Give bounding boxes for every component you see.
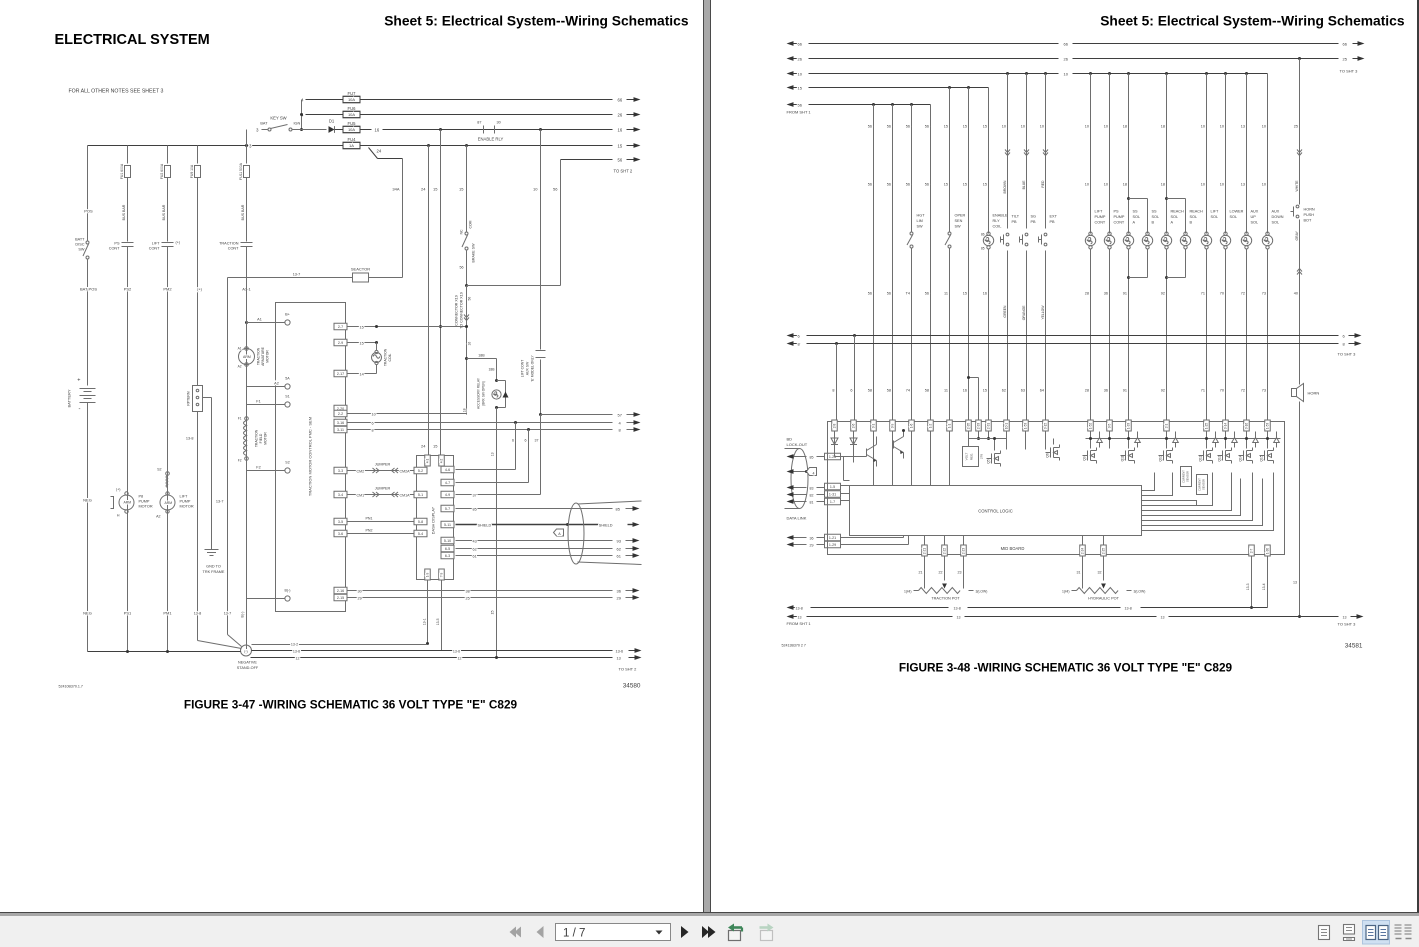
svg-text:85: 85 xyxy=(616,507,621,512)
svg-text:Q9: Q9 xyxy=(1083,456,1087,460)
svg-text:1-2: 1-2 xyxy=(929,423,933,428)
svg-text:10: 10 xyxy=(1085,125,1089,129)
svg-text:1-30: 1-30 xyxy=(1266,548,1270,555)
svg-text:SW: SW xyxy=(955,225,962,229)
svg-text:B(-): B(-) xyxy=(285,589,291,593)
svg-text:13: 13 xyxy=(1241,183,1245,187)
svg-text:SOL: SOL xyxy=(1133,215,1141,219)
svg-text:16: 16 xyxy=(963,389,967,393)
svg-text:PB: PB xyxy=(1012,220,1018,224)
svg-text:13-8: 13-8 xyxy=(1125,607,1132,611)
svg-text:PUMP: PUMP xyxy=(139,500,150,504)
svg-text:1(HI): 1(HI) xyxy=(1062,590,1070,594)
svg-text:72: 72 xyxy=(1241,292,1245,296)
svg-text:13: 13 xyxy=(957,616,961,620)
svg-text:REACH: REACH xyxy=(1190,210,1204,214)
svg-text:ARM: ARM xyxy=(165,501,173,505)
svg-text:SOL: SOL xyxy=(1251,221,1259,225)
svg-text:2-2: 2-2 xyxy=(338,412,343,416)
svg-text:3-4: 3-4 xyxy=(338,493,343,497)
svg-text:SHIELD: SHIELD xyxy=(478,524,492,528)
svg-text:BD: BD xyxy=(787,437,793,442)
svg-text:3-3: 3-3 xyxy=(338,469,343,473)
svg-text:TO SHT 2: TO SHT 2 xyxy=(614,169,633,174)
svg-text:3-16: 3-16 xyxy=(1245,423,1249,430)
svg-text:32: 32 xyxy=(1098,571,1102,575)
svg-text:34A: 34A xyxy=(392,187,399,192)
svg-text:61: 61 xyxy=(473,555,477,559)
svg-text:2-31: 2-31 xyxy=(987,423,991,430)
svg-text:NC: NC xyxy=(460,229,464,234)
svg-text:15: 15 xyxy=(963,292,967,296)
svg-text:4-9: 4-9 xyxy=(445,493,450,497)
svg-text:13: 13 xyxy=(1161,616,1165,620)
svg-text:5-2: 5-2 xyxy=(418,469,423,473)
svg-text:COIL: COIL xyxy=(993,225,1002,229)
svg-text:SS: SS xyxy=(1133,210,1139,214)
svg-text:15: 15 xyxy=(618,144,623,149)
svg-text:MOTOR: MOTOR xyxy=(139,505,153,509)
svg-text:PUMP: PUMP xyxy=(180,500,191,504)
svg-text:BUS BAR: BUS BAR xyxy=(122,204,126,220)
svg-text:2-15: 2-15 xyxy=(337,596,344,600)
svg-text:13-8: 13-8 xyxy=(796,607,803,611)
svg-text:BLUE: BLUE xyxy=(1022,180,1026,190)
svg-text:MOTOR: MOTOR xyxy=(180,505,194,509)
svg-text:13: 13 xyxy=(617,657,621,661)
svg-text:10: 10 xyxy=(1040,125,1044,129)
svg-text:SEACTOR: SEACTOR xyxy=(351,267,370,272)
svg-text:10: 10 xyxy=(1104,125,1108,129)
svg-text:YELLOW: YELLOW xyxy=(1041,305,1045,320)
svg-text:13-5: 13-5 xyxy=(436,618,440,625)
svg-text:3: 3 xyxy=(256,128,259,133)
svg-text:A2: A2 xyxy=(156,515,160,519)
svg-text:1-5: 1-5 xyxy=(830,485,835,489)
svg-text:BUS BAR: BUS BAR xyxy=(241,204,245,220)
svg-text:PS2: PS2 xyxy=(124,287,132,292)
svg-text:18: 18 xyxy=(1123,183,1127,187)
svg-text:BROWN: BROWN xyxy=(1003,180,1007,194)
svg-text:H: H xyxy=(117,514,120,518)
svg-text:58: 58 xyxy=(868,389,872,393)
svg-text:B+: B+ xyxy=(285,313,291,317)
svg-text:2-6: 2-6 xyxy=(852,423,856,428)
svg-text:LIFT: LIFT xyxy=(1211,210,1219,214)
svg-text:2-22: 2-22 xyxy=(943,548,947,555)
svg-text:POS: POS xyxy=(84,209,93,214)
svg-text:D1: D1 xyxy=(329,119,335,124)
svg-text:71: 71 xyxy=(1201,389,1205,393)
svg-text:3-16: 3-16 xyxy=(337,421,344,425)
svg-text:11: 11 xyxy=(944,292,948,296)
svg-text:26: 26 xyxy=(618,113,623,118)
svg-text:5-7: 5-7 xyxy=(445,507,450,511)
svg-text:15: 15 xyxy=(459,187,464,192)
svg-text:SHIELD: SHIELD xyxy=(599,524,613,528)
svg-text:24: 24 xyxy=(377,149,382,154)
svg-text:PN2: PN2 xyxy=(366,529,373,533)
svg-text:15: 15 xyxy=(433,187,438,192)
svg-text:SW: SW xyxy=(78,248,85,252)
svg-text:13: 13 xyxy=(491,452,495,456)
svg-text:66: 66 xyxy=(798,42,803,47)
svg-text:Q12: Q12 xyxy=(1199,455,1203,461)
svg-text:BRAKE SW: BRAKE SW xyxy=(472,243,476,263)
svg-text:LIM: LIM xyxy=(917,219,923,223)
svg-text:13: 13 xyxy=(1293,581,1297,585)
svg-text:LOWER: LOWER xyxy=(1230,210,1244,214)
svg-text:15: 15 xyxy=(798,86,803,91)
svg-text:(+): (+) xyxy=(116,488,121,492)
svg-text:70: 70 xyxy=(1220,389,1224,393)
svg-text:NEG: NEG xyxy=(83,498,92,503)
svg-text:8: 8 xyxy=(1343,342,1346,347)
svg-text:Sheet 5: Electrical System--Wi: Sheet 5: Electrical System--Wiring Schem… xyxy=(1100,14,1405,29)
svg-text:TRACTION: TRACTION xyxy=(255,429,259,447)
svg-text:1-53: 1-53 xyxy=(1266,423,1270,430)
svg-text:18B: 18B xyxy=(488,368,495,372)
svg-text:CONT: CONT xyxy=(109,247,120,251)
svg-text:1-1: 1-1 xyxy=(948,423,952,428)
svg-text:1-7: 1-7 xyxy=(830,500,835,504)
svg-text:4: 4 xyxy=(813,472,815,476)
svg-text:AUX: AUX xyxy=(1272,210,1280,214)
svg-text:10: 10 xyxy=(1002,125,1006,129)
svg-text:58: 58 xyxy=(925,389,929,393)
svg-text:10: 10 xyxy=(1085,183,1089,187)
svg-text:86: 86 xyxy=(981,233,985,237)
svg-text:MOTOR: MOTOR xyxy=(264,432,268,445)
svg-text:FIELD: FIELD xyxy=(259,433,263,443)
svg-text:CONT: CONT xyxy=(149,247,160,251)
svg-text:FU11 500A: FU11 500A xyxy=(239,162,243,180)
svg-text:81: 81 xyxy=(810,501,814,505)
svg-text:FROM SHT 1: FROM SHT 1 xyxy=(787,621,812,626)
svg-text:10: 10 xyxy=(533,187,538,192)
svg-text:SG: SG xyxy=(1031,215,1037,219)
svg-text:SENSOR: SENSOR xyxy=(1186,471,1190,482)
svg-text:2-9: 2-9 xyxy=(338,341,343,345)
svg-text:72: 72 xyxy=(1241,389,1245,393)
svg-text:25: 25 xyxy=(1343,57,1348,62)
svg-text:10: 10 xyxy=(1262,125,1266,129)
svg-text:37: 37 xyxy=(535,439,539,443)
svg-text:16: 16 xyxy=(375,128,380,133)
svg-text:REACH: REACH xyxy=(1171,210,1185,214)
svg-text:52410B370.1.7: 52410B370.1.7 xyxy=(59,685,83,689)
svg-text:3-15: 3-15 xyxy=(1044,423,1048,430)
svg-text:13-4: 13-4 xyxy=(1262,583,1266,590)
svg-text:SOL: SOL xyxy=(1272,221,1280,225)
svg-text:15: 15 xyxy=(433,444,438,449)
svg-text:13: 13 xyxy=(1241,125,1245,129)
svg-text:TRACTION: TRACTION xyxy=(257,347,261,365)
svg-text:Q13: Q13 xyxy=(1218,455,1222,461)
svg-text:63: 63 xyxy=(1021,389,1025,393)
svg-text:7-9: 7-9 xyxy=(440,572,444,577)
svg-text:Q10: Q10 xyxy=(1159,455,1163,461)
svg-text:S1: S1 xyxy=(285,395,289,399)
svg-text:'E' MODEL ONLY: 'E' MODEL ONLY xyxy=(531,355,535,382)
svg-text:ARMATURE: ARMATURE xyxy=(261,346,265,366)
svg-text:TRACTION: TRACTION xyxy=(384,348,388,366)
svg-text:85: 85 xyxy=(810,456,814,460)
svg-text:S2: S2 xyxy=(285,461,289,465)
svg-text:FIGURE 3-48 -WIRING SCHEMATIC: FIGURE 3-48 -WIRING SCHEMATIC 36 VOLT TY… xyxy=(899,661,1233,675)
svg-text:56: 56 xyxy=(798,103,803,108)
svg-text:FU4: FU4 xyxy=(348,137,357,142)
svg-text:13-6: 13-6 xyxy=(453,650,460,654)
svg-text:CONTROL LOGIC: CONTROL LOGIC xyxy=(978,509,1013,514)
svg-text:36: 36 xyxy=(1104,389,1108,393)
svg-text:TO SHT 3: TO SHT 3 xyxy=(1338,352,1357,357)
svg-text:PB: PB xyxy=(1050,220,1056,224)
svg-text:PUSH: PUSH xyxy=(1304,213,1315,217)
svg-text:56: 56 xyxy=(868,183,872,187)
svg-text:HORN: HORN xyxy=(1308,391,1320,396)
svg-text:AUX SW: AUX SW xyxy=(526,361,530,375)
svg-text:73: 73 xyxy=(1262,389,1266,393)
svg-text:5-4: 5-4 xyxy=(418,532,423,536)
svg-text:2-7: 2-7 xyxy=(338,325,343,329)
svg-text:TRACTION MOTOR CONTROL PMC - S: TRACTION MOTOR CONTROL PMC - SEM xyxy=(308,417,313,496)
svg-text:S2: S2 xyxy=(157,468,161,472)
svg-text:13-2: 13-2 xyxy=(291,643,298,647)
svg-text:AUX: AUX xyxy=(1251,210,1259,214)
svg-text:85: 85 xyxy=(473,508,477,512)
svg-text:31: 31 xyxy=(1077,571,1081,575)
svg-text:13-8: 13-8 xyxy=(194,612,202,616)
svg-text:13-7: 13-7 xyxy=(216,500,224,504)
svg-text:24: 24 xyxy=(421,444,426,449)
svg-text:2-33: 2-33 xyxy=(977,423,981,430)
svg-text:FROM SHT 1: FROM SHT 1 xyxy=(787,110,812,115)
svg-text:56: 56 xyxy=(887,292,891,296)
svg-text:SOL: SOL xyxy=(1211,215,1219,219)
svg-text:Q14: Q14 xyxy=(1239,455,1243,461)
svg-text:30: 30 xyxy=(497,121,501,125)
svg-text:A1: A1 xyxy=(238,347,242,351)
svg-text:13-8: 13-8 xyxy=(954,607,961,611)
svg-text:PM1: PM1 xyxy=(163,611,172,616)
svg-text:56: 56 xyxy=(925,125,929,129)
svg-text:56: 56 xyxy=(868,125,872,129)
svg-text:34581: 34581 xyxy=(1345,643,1363,650)
svg-text:LIFT: LIFT xyxy=(152,242,160,246)
svg-text:14: 14 xyxy=(360,373,364,377)
svg-text:56: 56 xyxy=(868,292,872,296)
svg-text:CM2: CM2 xyxy=(357,470,365,474)
svg-text:UP: UP xyxy=(1251,215,1257,219)
svg-text:BATT: BATT xyxy=(75,238,85,242)
svg-text:-: - xyxy=(79,407,81,413)
svg-text:CM1: CM1 xyxy=(357,494,365,498)
svg-text:10: 10 xyxy=(1104,183,1108,187)
svg-text:1-21: 1-21 xyxy=(829,536,836,540)
svg-text:15: 15 xyxy=(983,125,987,129)
svg-text:PUMP: PUMP xyxy=(1095,215,1106,219)
svg-text:Q15: Q15 xyxy=(1260,455,1264,461)
svg-text:15: 15 xyxy=(983,183,987,187)
svg-text:26: 26 xyxy=(798,57,803,62)
svg-text:10: 10 xyxy=(1021,125,1025,129)
svg-text:3-6: 3-6 xyxy=(338,532,343,536)
svg-text:5-1: 5-1 xyxy=(418,493,423,497)
svg-text:83: 83 xyxy=(810,487,814,491)
svg-text:13-1: 13-1 xyxy=(423,618,427,625)
svg-text:2-1: 2-1 xyxy=(1165,423,1169,428)
svg-text:BAT: BAT xyxy=(260,122,268,126)
svg-text:52413B370 2 7: 52413B370 2 7 xyxy=(782,644,806,648)
svg-text:CONT: CONT xyxy=(1095,221,1106,225)
svg-text:56: 56 xyxy=(925,183,929,187)
svg-text:CONT: CONT xyxy=(228,247,239,251)
svg-text:EXT: EXT xyxy=(1050,215,1058,219)
svg-text:DISC: DISC xyxy=(75,243,84,247)
svg-text:2-21: 2-21 xyxy=(923,548,927,555)
svg-text:3-1: 3-1 xyxy=(872,423,876,428)
svg-text:26: 26 xyxy=(1064,57,1069,62)
svg-text:P8: P8 xyxy=(139,495,144,499)
svg-text:91: 91 xyxy=(1123,292,1127,296)
svg-text:30: 30 xyxy=(358,590,362,594)
svg-text:1-33: 1-33 xyxy=(1127,423,1131,430)
svg-text:5-11: 5-11 xyxy=(444,523,451,527)
svg-text:43: 43 xyxy=(473,540,477,544)
svg-text:LIFT: LIFT xyxy=(1095,210,1103,214)
svg-text:38: 38 xyxy=(466,590,470,594)
svg-text:34580: 34580 xyxy=(623,683,641,690)
svg-text:1A: 1A xyxy=(349,143,354,148)
svg-text:3-14: 3-14 xyxy=(1224,423,1228,430)
svg-text:4-2: 4-2 xyxy=(440,458,444,463)
svg-text:TRK FRAME: TRK FRAME xyxy=(203,570,225,574)
svg-text:ELECTRICAL SYSTEM: ELECTRICAL SYSTEM xyxy=(55,32,210,48)
svg-text:CM2A: CM2A xyxy=(400,470,411,474)
svg-text:1-31: 1-31 xyxy=(829,493,836,497)
svg-text:MID BOARD: MID BOARD xyxy=(1001,546,1025,551)
svg-text:ARM: ARM xyxy=(243,355,251,359)
svg-text:8: 8 xyxy=(619,428,622,433)
svg-text:TO SHT 3: TO SHT 3 xyxy=(1340,69,1359,74)
svg-text:TRACTION: TRACTION xyxy=(219,242,239,246)
svg-text:6-5: 6-5 xyxy=(445,547,450,551)
svg-text:DOWN: DOWN xyxy=(1272,215,1284,219)
svg-text:COM: COM xyxy=(469,220,473,228)
svg-text:22: 22 xyxy=(939,571,943,575)
svg-text:1-53: 1-53 xyxy=(1024,423,1028,430)
svg-text:FIGURE 3-47 -WIRING SCHEMATIC: FIGURE 3-47 -WIRING SCHEMATIC 36 VOLT TY… xyxy=(184,698,518,712)
svg-text:15: 15 xyxy=(963,183,967,187)
svg-text:2-23: 2-23 xyxy=(962,548,966,555)
svg-text:COIL: COIL xyxy=(388,353,392,361)
svg-text:62: 62 xyxy=(473,548,477,552)
svg-text:10-1: 10-1 xyxy=(1005,423,1009,430)
svg-text:ARM: ARM xyxy=(124,500,132,504)
svg-text:A1: A1 xyxy=(257,318,262,322)
svg-text:VOLT: VOLT xyxy=(965,453,969,461)
svg-text:13-8: 13-8 xyxy=(186,437,194,441)
svg-text:6: 6 xyxy=(372,422,374,426)
svg-text:1-29: 1-29 xyxy=(829,543,836,547)
svg-text:15: 15 xyxy=(360,342,364,346)
svg-text:2-7: 2-7 xyxy=(1250,548,1254,553)
svg-text:LIFT CONT: LIFT CONT xyxy=(521,360,525,377)
svg-text:57: 57 xyxy=(618,413,623,418)
svg-text:F1: F1 xyxy=(238,417,242,421)
svg-text:13-7: 13-7 xyxy=(293,273,301,277)
svg-text:15: 15 xyxy=(491,611,495,615)
svg-text:MOTOR: MOTOR xyxy=(266,350,270,363)
svg-text:A: A xyxy=(1171,221,1174,225)
svg-text:HORN: HORN xyxy=(1304,208,1315,212)
svg-text:6: 6 xyxy=(525,439,527,443)
svg-text:FU2 600A: FU2 600A xyxy=(160,163,164,179)
svg-text:1-6: 1-6 xyxy=(910,423,914,428)
svg-text:29: 29 xyxy=(358,597,362,601)
svg-text:SENSOR: SENSOR xyxy=(1202,479,1206,490)
svg-text:10: 10 xyxy=(1201,125,1205,129)
svg-text:15: 15 xyxy=(944,183,948,187)
svg-text:TRACTION POT: TRACTION POT xyxy=(931,597,960,601)
svg-text:NEG: NEG xyxy=(83,611,92,616)
svg-text:GND TO: GND TO xyxy=(206,565,221,569)
svg-text:12: 12 xyxy=(458,657,462,661)
svg-text:HGT: HGT xyxy=(917,214,926,218)
svg-text:13: 13 xyxy=(798,616,802,620)
svg-text:BAT POS: BAT POS xyxy=(80,287,97,292)
svg-text:92: 92 xyxy=(1161,389,1165,393)
svg-text:29: 29 xyxy=(617,596,622,601)
svg-text:87: 87 xyxy=(477,121,481,125)
svg-text:(+): (+) xyxy=(176,241,181,245)
svg-text:4-1: 4-1 xyxy=(426,458,430,463)
svg-text:F1: F1 xyxy=(256,400,260,404)
svg-text:10: 10 xyxy=(372,413,376,417)
svg-text:T4: T4 xyxy=(906,292,910,296)
svg-text:16: 16 xyxy=(983,292,987,296)
svg-text:3-11: 3-11 xyxy=(337,428,344,432)
svg-text:40: 40 xyxy=(1294,292,1298,296)
svg-text:93: 93 xyxy=(617,539,622,544)
svg-text:36: 36 xyxy=(810,537,814,541)
svg-text:FU6: FU6 xyxy=(348,106,357,111)
svg-text:JUMPER: JUMPER xyxy=(375,487,391,491)
svg-text:4-7: 4-7 xyxy=(445,481,450,485)
svg-text:64: 64 xyxy=(1040,389,1044,393)
svg-text:28: 28 xyxy=(1085,389,1089,393)
svg-text:ORANGE: ORANGE xyxy=(1022,305,1026,320)
svg-text:5-10: 5-10 xyxy=(444,539,451,543)
svg-text:(BRK SW OPEN): (BRK SW OPEN) xyxy=(482,381,486,406)
svg-text:DASH DISPLAY: DASH DISPLAY xyxy=(432,506,436,534)
svg-text:CONT: CONT xyxy=(1114,221,1125,225)
svg-text:18: 18 xyxy=(1161,125,1165,129)
svg-text:66: 66 xyxy=(1064,42,1069,47)
svg-text:15: 15 xyxy=(963,125,967,129)
svg-text:5-8: 5-8 xyxy=(418,520,423,524)
svg-text:ENABLE RLY: ENABLE RLY xyxy=(478,137,504,142)
svg-text:10A: 10A xyxy=(348,97,355,102)
svg-text:15: 15 xyxy=(944,125,948,129)
svg-text:13-7: 13-7 xyxy=(224,612,232,616)
svg-text:21: 21 xyxy=(919,571,923,575)
svg-text:56: 56 xyxy=(887,183,891,187)
svg-text:JUMPER: JUMPER xyxy=(375,463,391,467)
svg-text:13-3: 13-3 xyxy=(1246,583,1250,590)
svg-text:37: 37 xyxy=(473,494,477,498)
